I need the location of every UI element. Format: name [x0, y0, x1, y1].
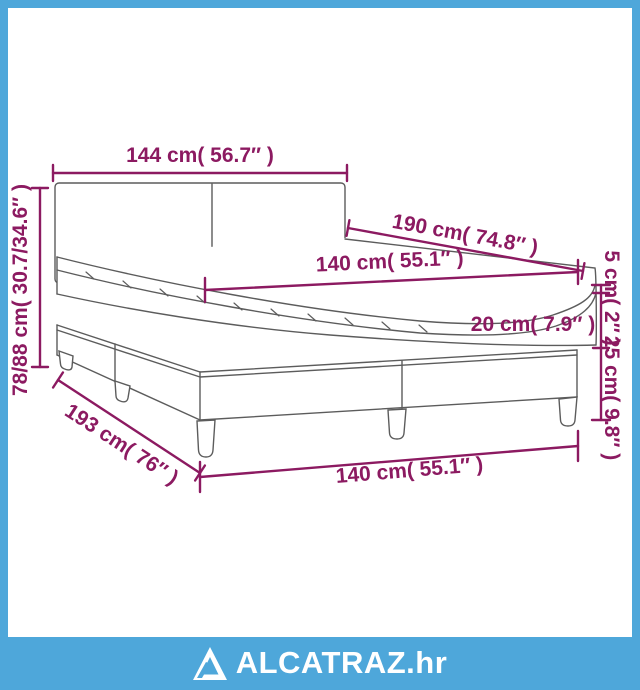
leg-front-middle — [388, 409, 406, 439]
base-width-bottom-label: 140 cm( 55.1″ ) — [335, 453, 484, 488]
leg-front-right — [559, 397, 577, 426]
base-height-label: 25 cm( 9.8″ ) — [600, 336, 623, 460]
bed-dimension-diagram: 144 cm( 56.7″ ) 78/88 cm( 30.7/34.6″ ) 1… — [0, 0, 640, 690]
topper-height-label: 5 cm( 2″ ) — [600, 250, 623, 345]
dim-line-total-height — [32, 188, 48, 367]
brand-footer-bar: ALCATRAZ.hr — [0, 637, 640, 690]
alcatraz-triangle-logo-icon — [193, 646, 227, 682]
brand-text: ALCATRAZ.hr — [236, 647, 448, 680]
dim-line-headboard-width — [53, 165, 347, 181]
base-diagonal-label: 193 cm( 76″ ) — [61, 399, 183, 489]
headboard-width-label: 144 cm( 56.7″ ) — [126, 144, 274, 167]
leg-front-corner — [197, 420, 215, 457]
mattress-height-label: 20 cm( 7.9″ ) — [471, 313, 595, 336]
product-dimension-image: 144 cm( 56.7″ ) 78/88 cm( 30.7/34.6″ ) 1… — [0, 0, 640, 690]
total-height-label: 78/88 cm( 30.7/34.6″ ) — [9, 184, 32, 396]
